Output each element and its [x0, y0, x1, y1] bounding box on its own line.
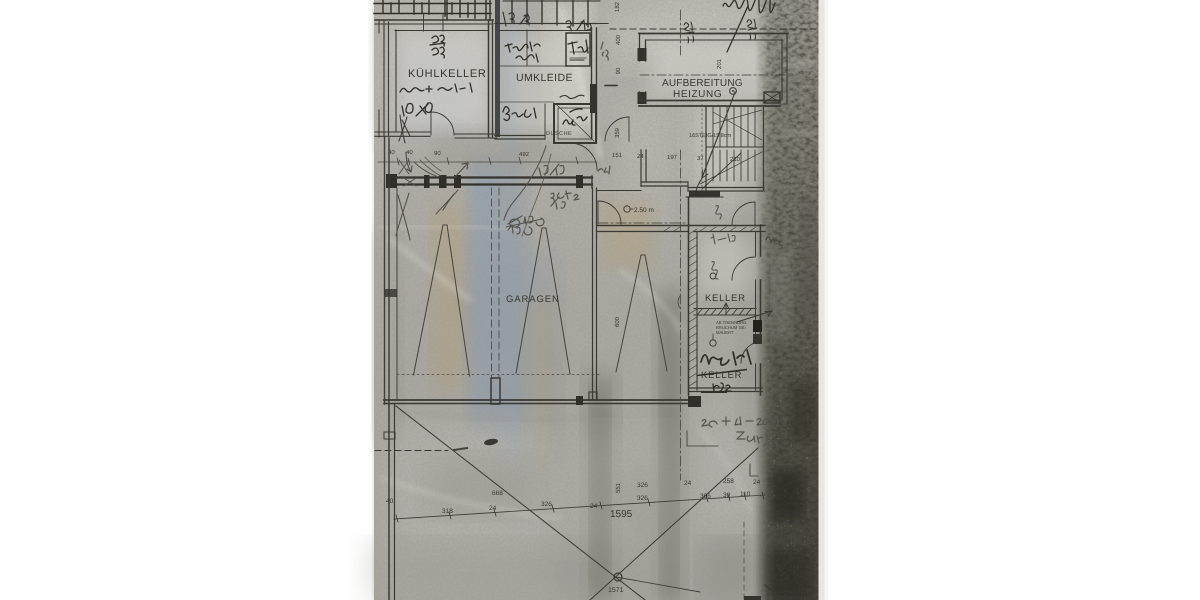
- svg-text:318: 318: [442, 508, 453, 515]
- svg-text:40: 40: [388, 149, 395, 156]
- svg-text:182: 182: [614, 1, 621, 12]
- svg-text:1571: 1571: [608, 587, 624, 594]
- svg-text:201: 201: [716, 58, 723, 69]
- svg-text:359: 359: [614, 127, 621, 138]
- svg-text:MAUERT: MAUERT: [716, 330, 734, 335]
- svg-text:306: 306: [700, 493, 711, 500]
- svg-text:37: 37: [697, 155, 704, 162]
- svg-text:24: 24: [637, 153, 644, 160]
- svg-text:326: 326: [637, 495, 648, 502]
- svg-text:40: 40: [386, 498, 394, 505]
- svg-text:551: 551: [615, 482, 622, 493]
- svg-text:KELLER: KELLER: [705, 293, 746, 304]
- svg-text:197: 197: [667, 154, 678, 161]
- svg-text:24: 24: [684, 480, 692, 487]
- svg-text:GARAGEN: GARAGEN: [506, 294, 560, 305]
- svg-text:24: 24: [753, 479, 761, 486]
- svg-text:151: 151: [612, 152, 623, 159]
- svg-text:668: 668: [492, 490, 503, 497]
- svg-text:UMKLEIDE: UMKLEIDE: [516, 72, 573, 84]
- svg-text:90: 90: [434, 150, 441, 157]
- svg-text:492: 492: [519, 151, 530, 158]
- svg-text:90: 90: [615, 67, 622, 74]
- svg-text:326: 326: [637, 482, 648, 489]
- svg-text:KÜHLKELLER: KÜHLKELLER: [408, 67, 487, 80]
- svg-text:258: 258: [723, 478, 734, 485]
- svg-text:210: 210: [730, 156, 741, 163]
- svg-text:AUFBEREITUNG: AUFBEREITUNG: [662, 78, 743, 89]
- svg-text:600: 600: [614, 316, 621, 327]
- svg-text:30: 30: [723, 492, 731, 499]
- svg-text:16STEIG/15.8cm: 16STEIG/15.8cm: [689, 133, 732, 139]
- svg-text:24: 24: [489, 505, 497, 512]
- svg-text:1595: 1595: [610, 509, 633, 520]
- svg-text:24: 24: [590, 503, 598, 510]
- svg-text:HEIZUNG: HEIZUNG: [673, 89, 722, 100]
- svg-text:400: 400: [615, 34, 622, 45]
- svg-text:40: 40: [406, 149, 413, 156]
- svg-text:326: 326: [541, 501, 552, 508]
- svg-text:100: 100: [768, 477, 779, 484]
- svg-text:110: 110: [740, 491, 751, 498]
- svg-text:2.50 m: 2.50 m: [634, 207, 654, 214]
- svg-text:DUSCHE: DUSCHE: [546, 131, 572, 137]
- svg-text:KELLER: KELLER: [701, 370, 742, 381]
